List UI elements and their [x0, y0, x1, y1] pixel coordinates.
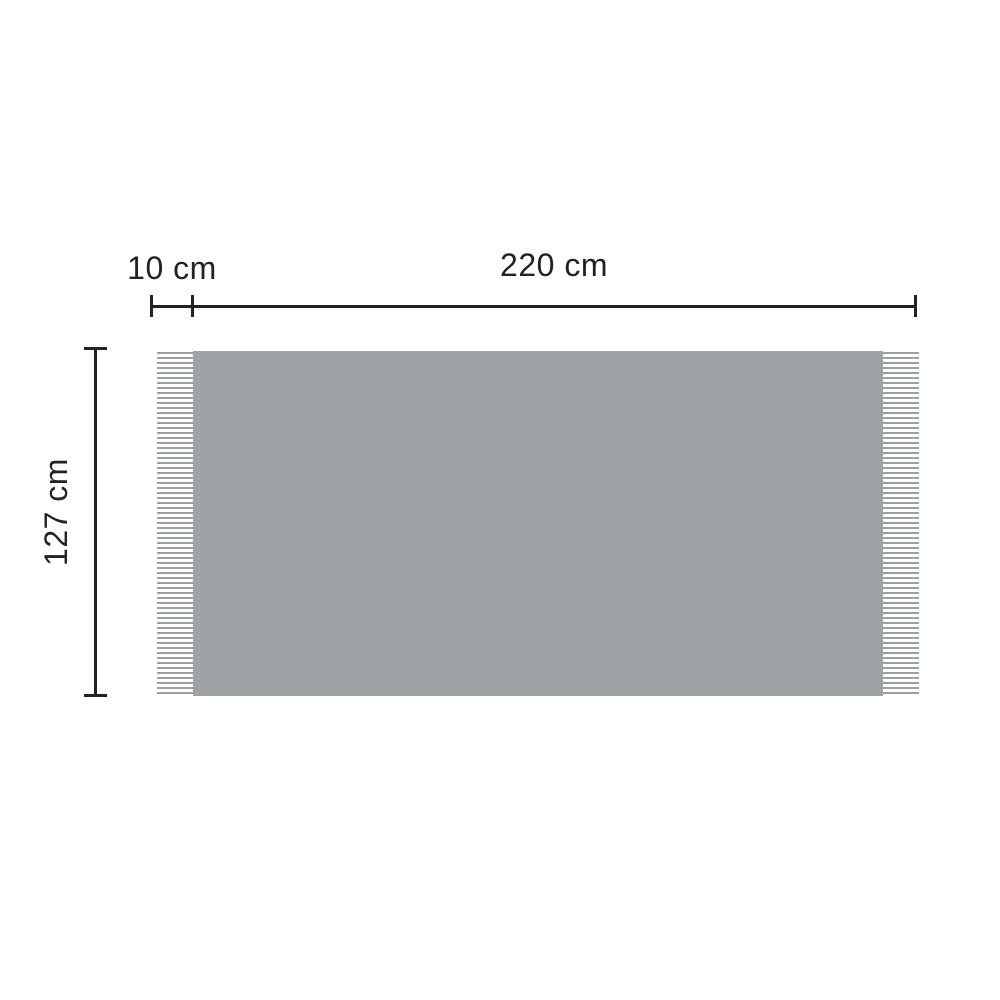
- height-dimension-line: [94, 348, 97, 697]
- blanket-body: [193, 351, 883, 696]
- dimension-tick-right: [914, 295, 917, 317]
- product-dimension-diagram: 10 cm 220 cm 127 cm: [0, 0, 1000, 1000]
- total-width-label: 220 cm: [500, 249, 608, 281]
- height-dimension-tick-top: [84, 347, 107, 350]
- width-dimension-line: [151, 305, 917, 308]
- dimension-tick-left: [150, 295, 153, 317]
- height-dimension-tick-bottom: [84, 694, 107, 697]
- blanket-fringe-left: [157, 352, 193, 696]
- dimension-tick-fringe: [191, 295, 194, 317]
- height-label: 127 cm: [40, 458, 72, 566]
- fringe-width-label: 10 cm: [127, 252, 217, 284]
- blanket-fringe-right: [883, 352, 919, 696]
